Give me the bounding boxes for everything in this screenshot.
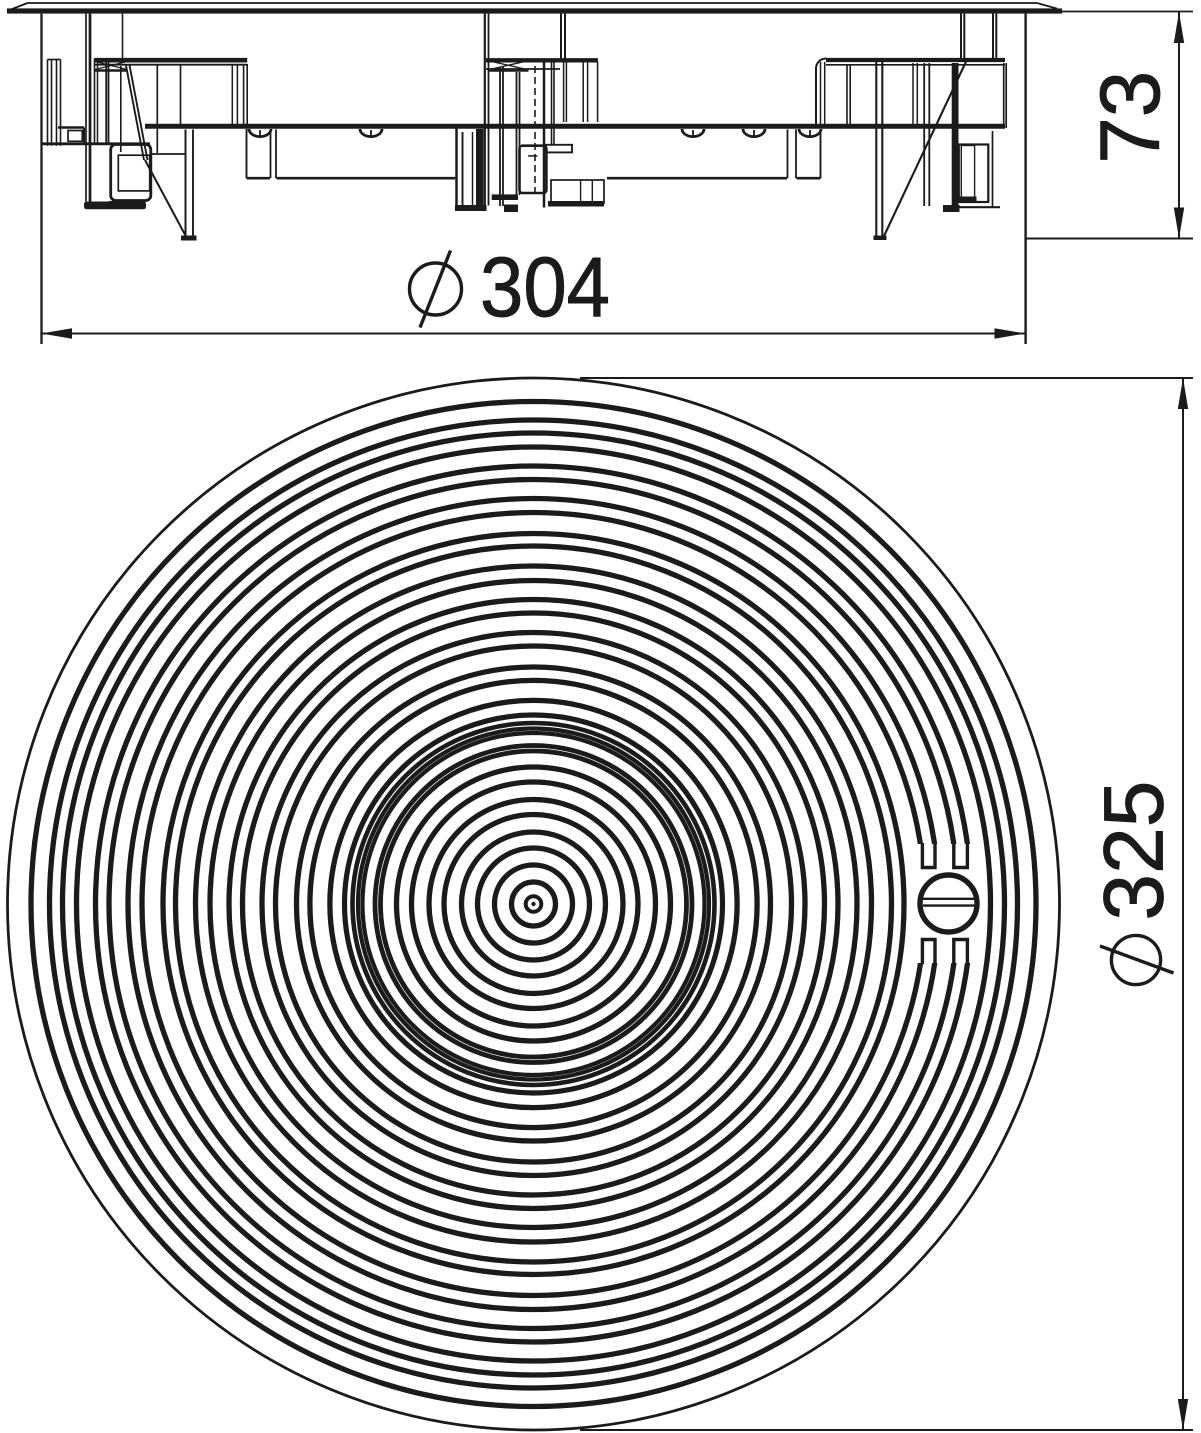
svg-text:73: 73 bbox=[1083, 71, 1177, 164]
svg-text:325: 325 bbox=[1087, 781, 1181, 921]
svg-text:304: 304 bbox=[480, 240, 610, 334]
